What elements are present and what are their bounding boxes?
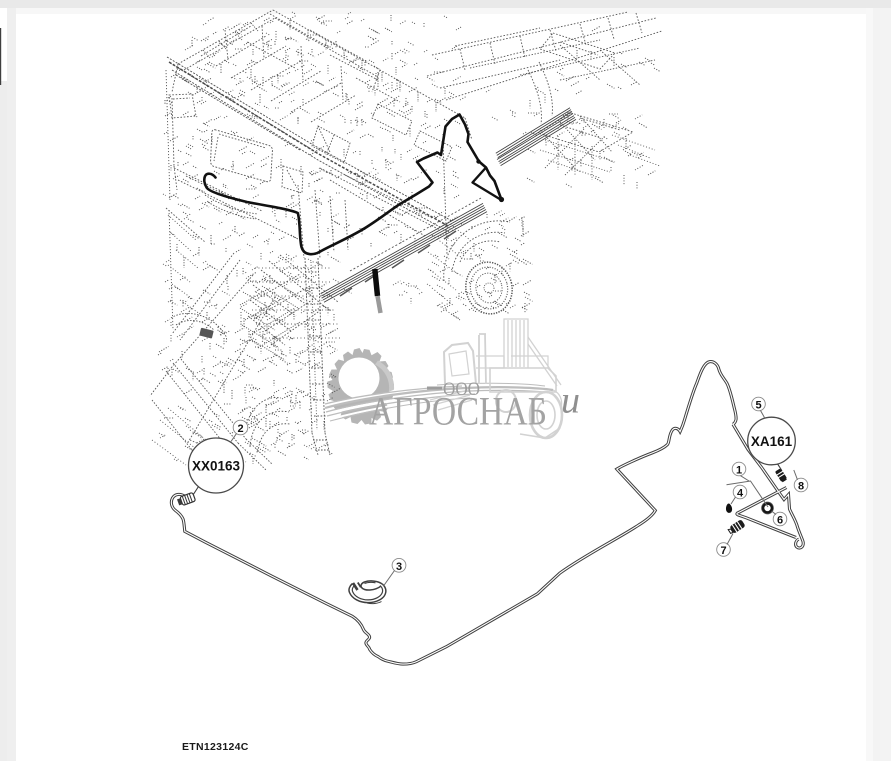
svg-text:3: 3 (396, 561, 402, 573)
svg-text:5: 5 (755, 400, 761, 412)
svg-text:АГРОСНАБ: АГРОСНАБ (369, 389, 547, 434)
svg-text:и: и (561, 380, 580, 422)
svg-text:XX0163: XX0163 (192, 459, 241, 474)
svg-text:6: 6 (777, 515, 783, 527)
svg-text:ETN123124C: ETN123124C (182, 741, 249, 753)
svg-text:1: 1 (736, 465, 742, 477)
svg-text:4: 4 (737, 488, 744, 500)
svg-text:8: 8 (798, 481, 804, 493)
svg-text:7: 7 (720, 545, 726, 557)
svg-text:2: 2 (237, 423, 243, 435)
svg-text:XA161: XA161 (751, 434, 793, 449)
